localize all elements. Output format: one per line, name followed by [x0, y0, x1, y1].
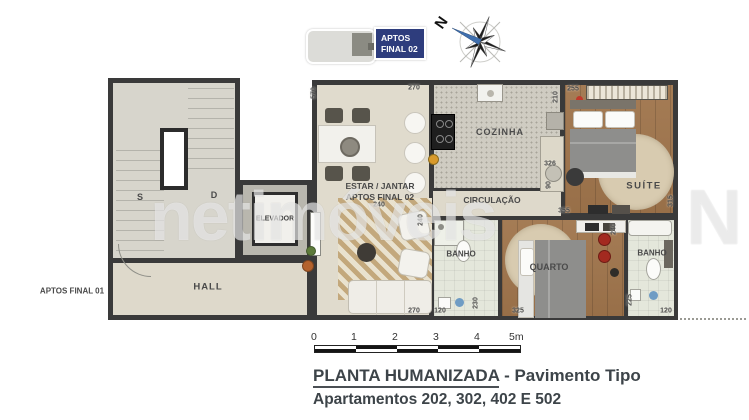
red-stool	[598, 233, 611, 246]
watermark-logo: N	[686, 172, 742, 263]
trash-bin	[610, 268, 619, 277]
stair-steps-left	[116, 150, 164, 258]
dim-cozinha-right: 210	[553, 91, 560, 103]
wall-decor-circle	[404, 112, 426, 134]
label-estar-line1: ESTAR / JANTAR	[345, 181, 414, 191]
coffee-table	[357, 243, 376, 262]
scale-bar-strip	[314, 345, 521, 353]
scale-tick: 4	[474, 331, 480, 343]
red-stool	[598, 250, 611, 263]
label-stairs-up: S	[137, 192, 143, 202]
dining-chair	[325, 166, 343, 181]
armchair	[397, 248, 431, 280]
kitchen-sink	[477, 84, 503, 102]
keyplan-legend: APTOS FINAL 02	[306, 24, 426, 66]
dim-quarto-bottom: 325	[512, 308, 524, 315]
label-estar-line2: APTOS FINAL 02	[346, 192, 414, 202]
dim-quarto-left: 230	[473, 297, 480, 309]
dresser	[612, 205, 630, 214]
dim-corridor-left: 240	[418, 214, 425, 226]
plant-vase	[302, 260, 314, 272]
label-banho-left: BANHO	[446, 250, 475, 259]
label-elevator: ELEVADOR	[256, 216, 294, 223]
dim-banho-right-left: 225	[627, 294, 634, 306]
scale-tick: 3	[433, 331, 439, 343]
dining-table	[318, 125, 376, 163]
compass-north-letter: N	[431, 14, 451, 33]
wall-decor-circle	[404, 142, 426, 164]
dim-suite-closet: 255	[567, 86, 579, 93]
scale-tick: 5m	[509, 331, 524, 343]
label-banho-right: BANHO	[637, 249, 666, 258]
dining-chair	[352, 108, 370, 123]
floorplan-page: APTOS FINAL 02 N	[0, 0, 749, 420]
label-stairs-down: D	[211, 190, 218, 200]
keyplan-label-line1: APTOS	[381, 33, 410, 43]
keyplan-highlight-unit: APTOS FINAL 02	[374, 27, 426, 60]
scale-tick: 0	[311, 331, 317, 343]
label-aptos-final-01: APTOS FINAL 01	[40, 287, 104, 296]
dim-banho-left-bottom: 120	[434, 308, 446, 315]
suite-bed	[570, 100, 636, 180]
label-hall: HALL	[193, 282, 222, 293]
suite-wardrobe	[586, 85, 668, 100]
dim-banho-right-bottom: 120	[660, 308, 672, 315]
dim-estar-left: 570	[311, 87, 318, 99]
projection-dotted-line	[680, 318, 746, 320]
label-suite: SUÍTE	[626, 181, 661, 192]
stove-cooktop	[431, 114, 455, 150]
blue-towel	[649, 291, 658, 300]
blue-towel	[455, 298, 464, 307]
dim-circ-small: 90	[546, 181, 553, 189]
label-circulacao: CIRCULAÇÃO	[463, 195, 520, 205]
dim-suite-right: 315	[668, 195, 675, 207]
tv-console	[588, 205, 608, 214]
quarto-bed	[518, 240, 586, 318]
dim-estar-bottom: 270	[408, 308, 420, 315]
dim-cozinha-bottom: 326	[544, 161, 556, 168]
kitchen-appliance	[546, 112, 564, 130]
desk	[576, 220, 626, 233]
bathtub	[628, 220, 672, 236]
scale-bar: 0 1 2 3 4 5m	[312, 331, 524, 355]
plan-title: PLANTA HUMANIZADA - Pavimento Tipo	[313, 366, 641, 386]
plan-subtitle: Apartamentos 202, 302, 402 E 502	[313, 391, 561, 409]
keyplan-label-line2: FINAL 02	[381, 44, 418, 54]
plan-title-suffix: - Pavimento Tipo	[499, 366, 640, 385]
suite-pouf	[566, 168, 584, 186]
dining-chair	[325, 108, 343, 123]
dim-corridor-top: 240	[373, 202, 385, 209]
dining-chair	[352, 166, 370, 181]
scale-tick: 1	[351, 331, 357, 343]
plant	[306, 246, 316, 256]
label-cozinha: COZINHA	[476, 127, 524, 137]
label-quarto: QUARTO	[530, 262, 569, 272]
dim-estar-top: 270	[408, 85, 420, 92]
stair-void	[160, 128, 188, 190]
dim-quarto-top: 355	[558, 208, 570, 215]
compass-rose-icon: N	[426, 4, 526, 74]
stair-steps-right	[188, 88, 234, 172]
plan-title-heading: PLANTA HUMANIZADA	[313, 366, 499, 388]
scale-tick: 2	[392, 331, 398, 343]
dim-quarto-right: 240	[611, 223, 618, 235]
decor-flowers	[428, 154, 439, 165]
toilet	[646, 258, 661, 280]
